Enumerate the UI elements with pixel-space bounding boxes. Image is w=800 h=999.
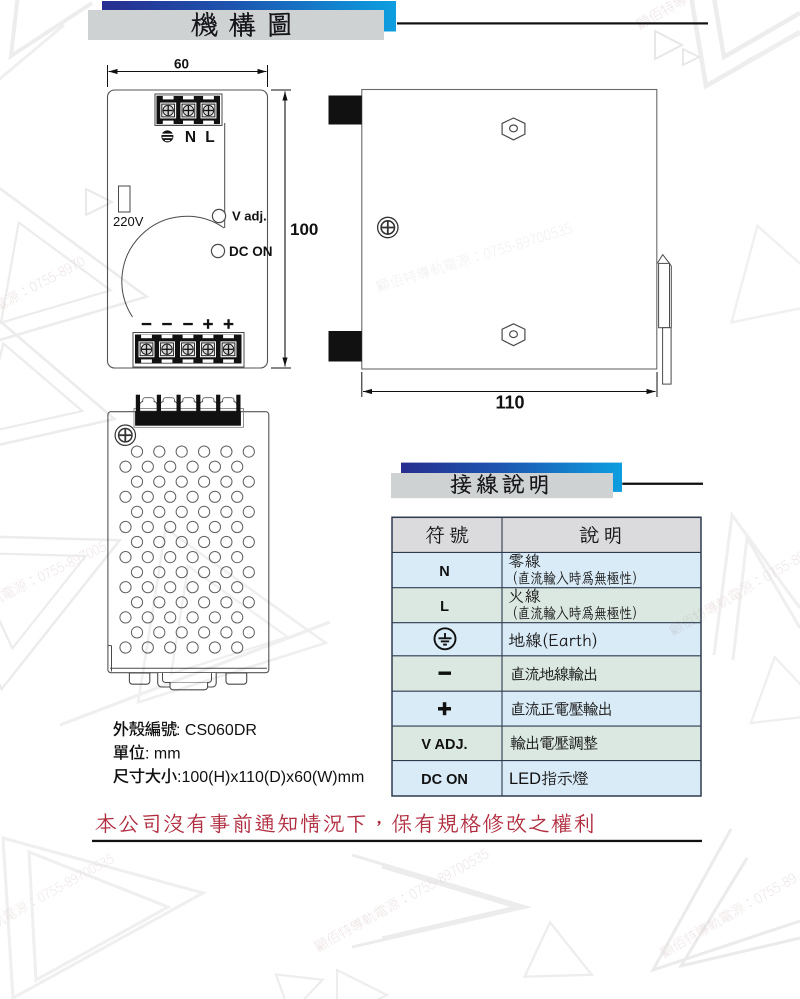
svg-text::100(H)x110(D)x60(W)mm: :100(H)x110(D)x60(W)mm [177,769,364,786]
svg-text:DC ON: DC ON [229,244,273,259]
svg-text:LED: LED [509,770,541,788]
svg-text:: mm: : mm [145,746,181,763]
svg-text:L: L [440,599,449,615]
svg-text:220V: 220V [113,214,144,229]
svg-text:V ADJ.: V ADJ. [421,737,467,753]
svg-text:: CS060DR: : CS060DR [176,722,257,739]
svg-text:V adj.: V adj. [232,209,267,224]
svg-text:100: 100 [290,220,318,239]
svg-text:DC ON: DC ON [421,772,468,788]
svg-text:110: 110 [495,393,524,413]
svg-text:N: N [185,129,196,146]
svg-text:60: 60 [174,57,189,72]
svg-text:L: L [205,129,214,146]
svg-text:N: N [439,564,449,580]
